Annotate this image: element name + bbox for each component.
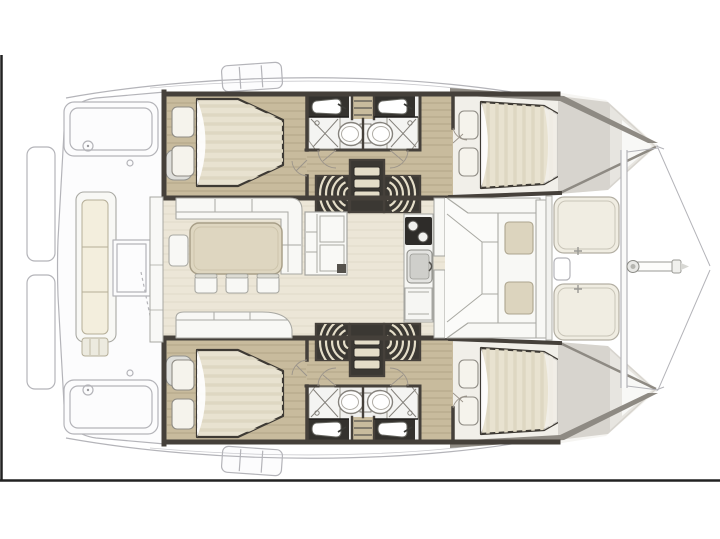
bowsprit (627, 260, 689, 273)
fwd-cockpit-backrest (536, 200, 546, 338)
settee (176, 312, 292, 338)
seat-cushion (505, 222, 533, 254)
forward-bulkhead (434, 198, 445, 256)
stern-locker-bottom (64, 380, 158, 434)
foredeck-coaming (546, 196, 552, 340)
cockpit-table (113, 240, 150, 296)
galley-cabinet (405, 288, 432, 320)
sunpad-bottom (554, 284, 619, 340)
cockpit-bench (76, 192, 116, 356)
floorplan-page (0, 0, 720, 539)
forward-crossbeam (621, 150, 627, 388)
nav-module (305, 212, 347, 275)
swim-platform-top (27, 147, 55, 261)
dinette-stool (257, 274, 279, 293)
stove-burner (418, 232, 428, 242)
sunpad-top (554, 197, 619, 253)
swim-platform-bottom (27, 275, 55, 389)
seat-cushion (505, 282, 533, 314)
stove (405, 217, 432, 245)
dinette-table (190, 223, 282, 274)
floorplan-svg (0, 0, 720, 539)
bowsprit-tip (681, 263, 689, 270)
galley-sink (407, 250, 432, 283)
sliding-door (150, 197, 163, 342)
foredeck-step (554, 258, 570, 280)
transom-step-bottom (221, 446, 283, 476)
forward-bulkhead (434, 270, 445, 338)
stove-burner (408, 221, 418, 231)
nav-module-hatch (337, 264, 346, 273)
dinette-chair (169, 235, 188, 266)
dinette-stool (195, 274, 217, 293)
galley (404, 214, 433, 322)
transom-step-top (221, 62, 283, 92)
forward-cockpit (445, 198, 546, 338)
stern-locker-top (64, 102, 158, 156)
dinette-stool (226, 274, 248, 293)
